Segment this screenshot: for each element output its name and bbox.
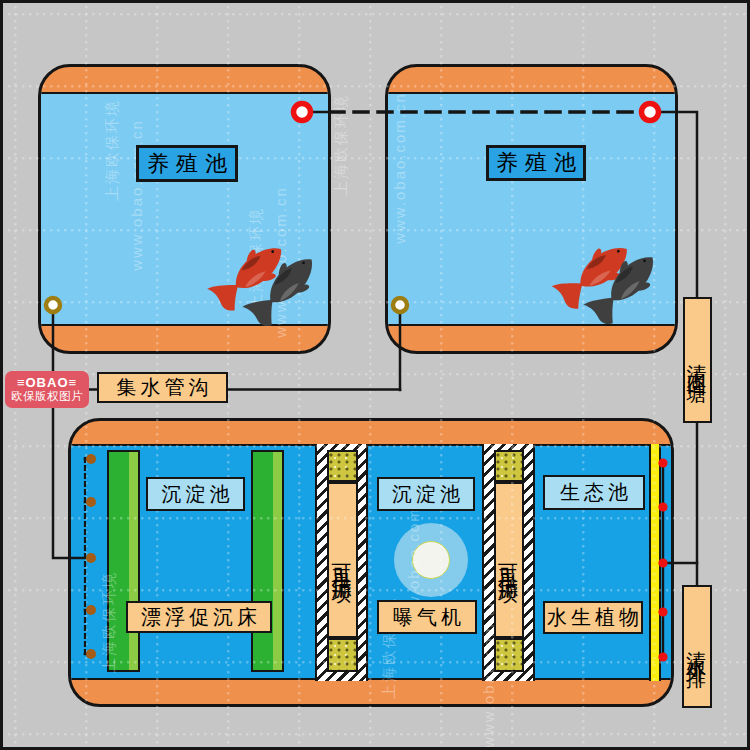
collector-port-dot: [86, 497, 96, 507]
collector-port-dot: [86, 649, 96, 659]
pond1-label: 养殖池: [136, 145, 238, 182]
clear-water-discharge-label: 清水外排: [682, 585, 712, 708]
sedimentation1-label: 沉淀池: [146, 477, 245, 511]
pond2-drain-valve: [393, 298, 407, 312]
eco-pond-label: 生态池: [543, 475, 645, 510]
collector-pipe-label: 集水管沟: [97, 372, 228, 403]
logo-title: ≡OBAO≡: [17, 376, 77, 390]
pond1-drain-line: [53, 312, 85, 558]
diagram-canvas: 可再生滤坝 可再生滤坝 上海欧保环境 www.obao.com.cn 上海欧保环…: [0, 0, 750, 750]
pipe-port-dot: [658, 458, 667, 467]
pond2-label: 养殖池: [486, 145, 586, 181]
logo-subtitle: 欧保版权图片: [11, 390, 83, 403]
pipe-port-dot: [658, 607, 667, 616]
pond1-drain-valve: [46, 298, 60, 312]
floating-bed-label: 漂浮促沉床: [126, 601, 272, 633]
pipe-port-dot: [658, 502, 667, 511]
pond2-outlet-valve: [642, 104, 659, 121]
collector-port-dot: [86, 553, 96, 563]
pond2-to-return-line: [659, 112, 697, 297]
obao-copyright-logo: ≡OBAO≡ 欧保版权图片: [5, 371, 89, 408]
pipe-port-dot: [658, 652, 667, 661]
aerator-label: 曝气机: [377, 600, 477, 634]
pond1-outlet-valve: [294, 104, 311, 121]
sedimentation2-label: 沉淀池: [377, 477, 475, 511]
collector-port-dot: [86, 605, 96, 615]
collector-port-dot: [86, 454, 96, 464]
pipe-port-dot: [658, 558, 667, 567]
clear-water-return-label: 清水回塘: [683, 297, 712, 423]
aquatic-plants-label: 水生植物: [543, 601, 643, 634]
